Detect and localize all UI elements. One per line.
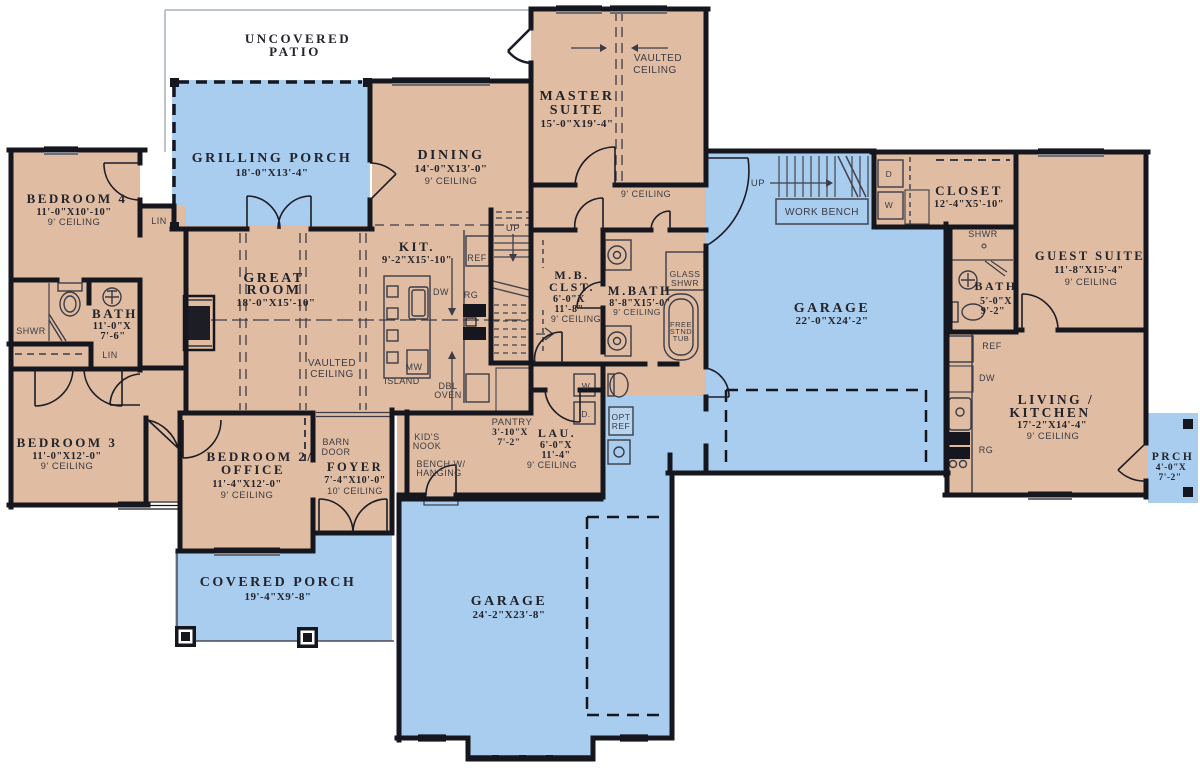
svg-text:PRCH: PRCH xyxy=(1152,451,1195,463)
svg-text:FOYER: FOYER xyxy=(327,460,383,474)
svg-text:WORK BENCH: WORK BENCH xyxy=(785,207,859,218)
svg-text:REF: REF xyxy=(982,341,1002,351)
svg-text:REF: REF xyxy=(612,421,631,431)
svg-text:OVEN: OVEN xyxy=(434,390,462,400)
svg-text:BEDROOM 4: BEDROOM 4 xyxy=(27,191,128,206)
svg-text:BEDROOM 3: BEDROOM 3 xyxy=(17,435,118,450)
svg-text:KITCHEN: KITCHEN xyxy=(1009,405,1090,420)
svg-text:NOOK: NOOK xyxy=(413,441,442,451)
svg-text:BATH: BATH xyxy=(974,279,1017,293)
svg-text:PATIO: PATIO xyxy=(269,44,321,59)
svg-text:9' CEILING: 9' CEILING xyxy=(621,189,671,199)
svg-text:DW: DW xyxy=(433,287,449,297)
svg-text:11'-4"X12'-0": 11'-4"X12'-0" xyxy=(212,479,282,490)
svg-text:15'-0"X19'-4": 15'-0"X19'-4" xyxy=(540,118,613,130)
svg-text:PANTRY: PANTRY xyxy=(492,417,533,428)
svg-text:24'-2"X23'-8": 24'-2"X23'-8" xyxy=(472,609,545,621)
svg-text:GRILLING PORCH: GRILLING PORCH xyxy=(192,151,353,166)
svg-text:CEILING: CEILING xyxy=(310,369,354,380)
svg-text:14'-0"X13'-0": 14'-0"X13'-0" xyxy=(414,163,487,175)
svg-text:ROOM: ROOM xyxy=(246,283,301,298)
svg-text:18'-0"X15'-10": 18'-0"X15'-10" xyxy=(236,297,315,309)
svg-text:7'-4"X10'-0": 7'-4"X10'-0" xyxy=(324,475,386,486)
svg-text:LIN: LIN xyxy=(102,350,118,360)
svg-text:UP: UP xyxy=(506,223,520,234)
svg-text:LIN: LIN xyxy=(151,216,167,226)
svg-text:9' CEILING: 9' CEILING xyxy=(613,307,661,317)
svg-text:7'-2": 7'-2" xyxy=(497,438,520,448)
svg-text:VAULTED: VAULTED xyxy=(308,358,356,369)
svg-text:11'-8"X15'-4": 11'-8"X15'-4" xyxy=(1054,265,1124,276)
svg-text:SHWR: SHWR xyxy=(16,326,46,336)
svg-text:MW: MW xyxy=(406,362,423,372)
svg-text:7'-2": 7'-2" xyxy=(1158,473,1181,483)
svg-text:SUITE: SUITE xyxy=(550,103,605,118)
svg-text:DINING: DINING xyxy=(417,148,484,163)
svg-text:9' CEILING: 9' CEILING xyxy=(48,217,101,228)
svg-text:DW: DW xyxy=(979,373,995,383)
svg-text:BATH: BATH xyxy=(92,306,138,321)
svg-text:UP: UP xyxy=(751,178,765,189)
svg-text:LAU.: LAU. xyxy=(538,426,576,440)
svg-text:9' CEILING: 9' CEILING xyxy=(551,314,601,324)
svg-text:COVERED PORCH: COVERED PORCH xyxy=(200,575,357,590)
svg-text:7'-6": 7'-6" xyxy=(100,331,125,342)
svg-text:4'-0"X: 4'-0"X xyxy=(1156,463,1186,473)
svg-text:D.: D. xyxy=(581,409,591,419)
svg-text:9'-2"X15'-10": 9'-2"X15'-10" xyxy=(382,255,452,266)
svg-text:HANGING: HANGING xyxy=(416,468,462,478)
svg-text:GARAGE: GARAGE xyxy=(794,301,870,316)
svg-text:BARN: BARN xyxy=(322,437,349,447)
svg-text:W: W xyxy=(582,381,591,391)
svg-text:10' CEILING: 10' CEILING xyxy=(327,486,383,496)
svg-text:REF: REF xyxy=(467,253,487,263)
svg-text:9' CEILING: 9' CEILING xyxy=(41,461,94,472)
svg-text:9' CEILING: 9' CEILING xyxy=(527,460,577,470)
svg-text:9' CEILING: 9' CEILING xyxy=(221,490,274,501)
svg-text:9' CEILING: 9' CEILING xyxy=(1065,277,1118,288)
svg-text:SHWR: SHWR xyxy=(671,278,699,288)
svg-text:RG: RG xyxy=(464,290,479,300)
svg-text:ISLAND: ISLAND xyxy=(384,376,420,386)
svg-text:DOOR: DOOR xyxy=(322,447,351,457)
svg-text:D: D xyxy=(886,169,893,179)
svg-text:18'-0"X13'-4": 18'-0"X13'-4" xyxy=(235,167,308,179)
svg-text:9' CEILING: 9' CEILING xyxy=(425,176,478,187)
svg-text:M.BATH: M.BATH xyxy=(608,284,672,298)
svg-text:22'-0"X24'-2": 22'-0"X24'-2" xyxy=(795,315,868,327)
svg-text:19'-4"X9'-8": 19'-4"X9'-8" xyxy=(244,591,311,603)
svg-text:RG: RG xyxy=(979,445,994,455)
svg-text:CEILING: CEILING xyxy=(633,65,677,76)
svg-text:12'-4"X5'-10": 12'-4"X5'-10" xyxy=(934,199,1004,210)
svg-text:SHWR: SHWR xyxy=(968,229,998,239)
svg-text:W: W xyxy=(885,200,894,210)
svg-text:3'-10"X: 3'-10"X xyxy=(492,428,528,438)
svg-text:9'-2": 9'-2" xyxy=(981,306,1005,317)
svg-text:17'-2"X14'-4": 17'-2"X14'-4" xyxy=(1017,420,1087,431)
svg-text:GARAGE: GARAGE xyxy=(471,594,547,609)
svg-text:OFFICE: OFFICE xyxy=(221,462,285,477)
svg-text:MASTER: MASTER xyxy=(540,89,615,104)
svg-text:VAULTED: VAULTED xyxy=(634,53,682,64)
svg-text:CLOSET: CLOSET xyxy=(935,183,1003,198)
svg-text:KIT.: KIT. xyxy=(399,239,435,254)
svg-text:CLST.: CLST. xyxy=(549,280,595,294)
svg-text:GUEST SUITE: GUEST SUITE xyxy=(1035,249,1145,263)
svg-text:TUB: TUB xyxy=(673,334,690,343)
svg-text:9' CEILING: 9' CEILING xyxy=(1027,431,1080,442)
